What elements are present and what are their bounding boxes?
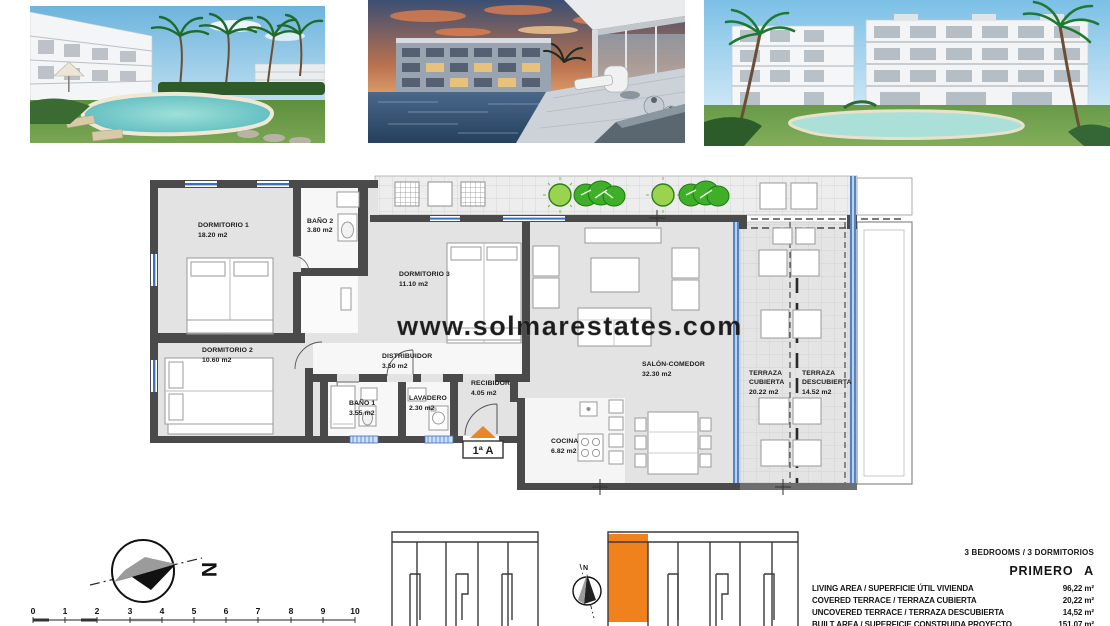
svg-text:CUBIERTA: CUBIERTA: [749, 379, 784, 386]
room-area: 4.05 m2: [471, 390, 497, 397]
svg-text:DESCUBIERTA: DESCUBIERTA: [802, 379, 852, 386]
room-label: BAÑO 2: [307, 216, 333, 225]
unit-title: PRIMERO A: [812, 564, 1094, 578]
summary-label: COVERED TERRACE / TERRAZA CUBIERTA: [812, 595, 977, 607]
summary-value: 96,22 m²: [1063, 583, 1094, 595]
room-label: DORMITORIO 2: [202, 347, 253, 354]
room-area: 11.10 m2: [399, 281, 428, 288]
photo-buildings-lawn-art: [704, 0, 1110, 146]
room-area: 3.50 m2: [382, 363, 408, 370]
scale-tick: 7: [256, 606, 261, 616]
room-area: 2.30 m2: [409, 405, 435, 412]
keyplan-left-block: [392, 532, 538, 626]
room-area: 3.55 m2: [349, 410, 375, 417]
summary-label: BUILT AREA / SUPERFICIE CONSTRUIDA PROYE…: [812, 619, 1012, 626]
scale-tick: 4: [160, 606, 165, 616]
room-area: 18.20 m2: [198, 232, 228, 239]
room-area: 20.22 m2: [749, 389, 779, 396]
room-label: COCINA: [551, 438, 578, 445]
room-label: SALÓN-COMEDOR: [642, 359, 705, 368]
scale-tick: 8: [289, 606, 294, 616]
bedrooms-count: 3 BEDROOMS / 3 DORMITORIOS: [812, 548, 1094, 557]
room-label: BAÑO 1: [349, 398, 375, 407]
scale-tick: 2: [95, 606, 100, 616]
keyplan-north-label: N: [583, 565, 588, 572]
scale-bar: 0 1 2 3 4 5 6 7 8 9 10: [23, 604, 368, 626]
summary-value: 14,52 m²: [1063, 607, 1094, 619]
room-label: TERRAZA: [802, 370, 835, 377]
highlighted-unit: [608, 534, 648, 622]
photo-pool-garden-day-art: [30, 6, 325, 143]
keyplan-right-block: [608, 532, 798, 626]
room-area: 14.52 m2: [802, 389, 832, 396]
scale-tick: 6: [224, 606, 229, 616]
watermark-text: www.solmarestates.com: [396, 311, 743, 341]
photo-buildings-lawn: [704, 0, 1110, 146]
summary-value: 151,07 m²: [1058, 619, 1094, 626]
room-label: DORMITORIO 3: [399, 271, 450, 278]
floor-plan: DORMITORIO 1 18.20 m2 BAÑO 2 3.80 m2 DOR…: [145, 172, 915, 520]
terraces: [733, 176, 912, 490]
summary-row: LIVING AREA / SUPERFICIE ÚTIL VIVIENDA 9…: [812, 583, 1094, 595]
summary-value: 20,22 m²: [1063, 595, 1094, 607]
room-label: DORMITORIO 1: [198, 222, 249, 229]
scale-tick: 9: [321, 606, 326, 616]
room-area: 32.30 m2: [642, 371, 672, 378]
room-label: LAVADERO: [409, 395, 447, 402]
summary-label: LIVING AREA / SUPERFICIE ÚTIL VIVIENDA: [812, 583, 974, 595]
scale-tick: 1: [63, 606, 68, 616]
scale-tick: 0: [31, 606, 36, 616]
summary-row: BUILT AREA / SUPERFICIE CONSTRUIDA PROYE…: [812, 619, 1094, 626]
summary-row: COVERED TERRACE / TERRAZA CUBIERTA 20,22…: [812, 595, 1094, 607]
room-area: 3.80 m2: [307, 227, 333, 234]
photo-pool-garden-day: [30, 6, 325, 143]
summary-row: UNCOVERED TERRACE / TERRAZA DESCUBIERTA …: [812, 607, 1094, 619]
room-label: RECIBIDOR: [471, 380, 510, 387]
summary-label: UNCOVERED TERRACE / TERRAZA DESCUBIERTA: [812, 607, 1004, 619]
unit-summary: 3 BEDROOMS / 3 DORMITORIOS PRIMERO A LIV…: [812, 548, 1094, 626]
key-plan: N: [390, 524, 810, 626]
unit-label: 1ª A: [473, 445, 494, 457]
room-area: 6.82 m2: [551, 448, 577, 455]
north-compass: N: [90, 532, 220, 610]
north-label: N: [197, 562, 220, 577]
photo-terrace-dusk-art: [368, 0, 685, 143]
room-area: 10.60 m2: [202, 357, 232, 364]
room-label: TERRAZA: [749, 370, 782, 377]
unit-tag: 1ª A: [463, 441, 503, 458]
room-label: DISTRIBUIDOR: [382, 353, 432, 360]
rear-terrace-strip: [375, 176, 857, 215]
scale-tick: 10: [350, 606, 360, 616]
keyplan-compass: N: [573, 564, 601, 618]
listing-sheet: DORMITORIO 1 18.20 m2 BAÑO 2 3.80 m2 DOR…: [0, 0, 1110, 626]
scale-tick: 5: [192, 606, 197, 616]
scale-tick: 3: [128, 606, 133, 616]
photo-terrace-dusk: [368, 0, 685, 143]
